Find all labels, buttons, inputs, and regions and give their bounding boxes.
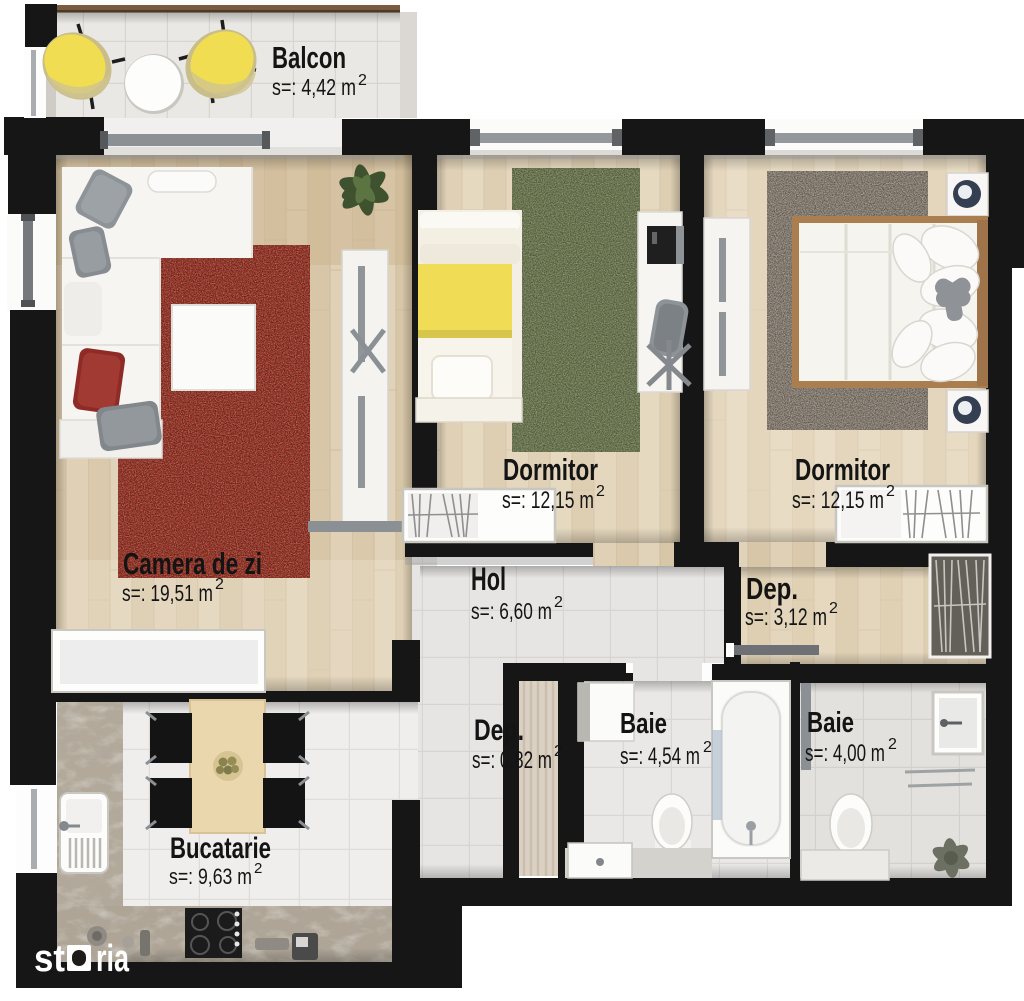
svg-text:2: 2 xyxy=(888,736,897,753)
svg-text:Baie: Baie xyxy=(807,707,854,739)
svg-text:s=: 4,00 m: s=: 4,00 m xyxy=(805,740,885,767)
svg-text:s=: 4,54 m: s=: 4,54 m xyxy=(620,743,700,770)
svg-text:2: 2 xyxy=(703,739,712,756)
svg-text:Dormitor: Dormitor xyxy=(795,452,890,487)
svg-text:Baie: Baie xyxy=(620,708,667,740)
svg-text:s=: 3,12 m: s=: 3,12 m xyxy=(745,604,827,631)
svg-text:s=: 19,51 m: s=: 19,51 m xyxy=(122,580,213,606)
svg-text:s=: 0,82 m: s=: 0,82 m xyxy=(472,747,552,774)
svg-text:s=: 12,15 m: s=: 12,15 m xyxy=(792,487,884,514)
svg-text:st: st xyxy=(34,938,65,980)
svg-text:ria: ria xyxy=(96,938,130,980)
svg-text:Hol: Hol xyxy=(471,561,506,597)
svg-text:Dormitor: Dormitor xyxy=(503,452,598,487)
svg-text:s=: 4,42 m: s=: 4,42 m xyxy=(272,74,356,100)
svg-text:Dep.: Dep. xyxy=(746,571,798,606)
svg-text:Balcon: Balcon xyxy=(272,40,346,75)
svg-text:2: 2 xyxy=(254,860,262,877)
svg-text:2: 2 xyxy=(554,594,563,611)
svg-text:s=: 12,15 m: s=: 12,15 m xyxy=(502,487,594,514)
svg-text:2: 2 xyxy=(829,600,838,617)
svg-text:Dep.: Dep. xyxy=(474,714,524,747)
svg-text:2: 2 xyxy=(358,72,367,89)
svg-text:s=: 6,60 m: s=: 6,60 m xyxy=(471,598,552,624)
svg-text:2: 2 xyxy=(596,483,605,500)
svg-text:2: 2 xyxy=(215,576,224,593)
svg-text:2: 2 xyxy=(554,743,563,760)
svg-text:2: 2 xyxy=(886,483,895,500)
svg-text:Camera de zi: Camera de zi xyxy=(123,546,262,581)
svg-text:s=: 9,63 m: s=: 9,63 m xyxy=(169,864,252,889)
